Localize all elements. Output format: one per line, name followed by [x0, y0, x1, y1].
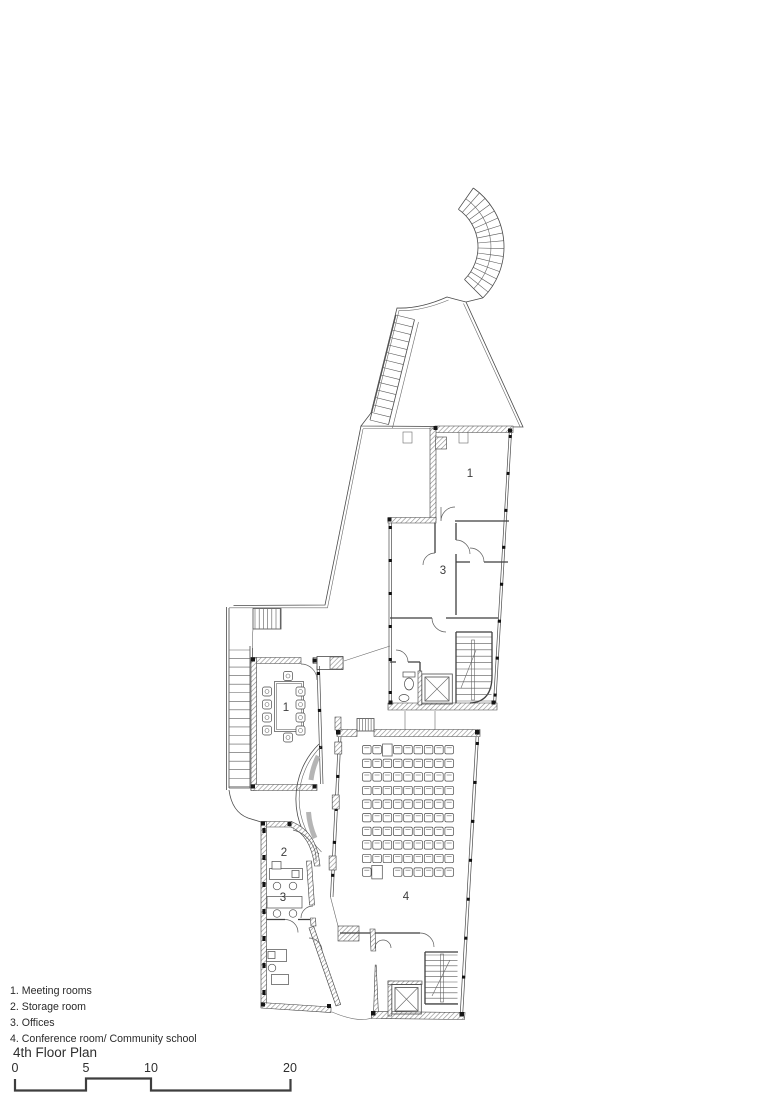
terrace-stair	[370, 315, 419, 428]
upper-wc	[390, 650, 420, 703]
office-desks	[267, 862, 303, 985]
drawing-title: 4th Floor Plan	[13, 1045, 97, 1060]
meeting-east-window-wall	[317, 666, 323, 784]
legend-item-2: 2. Storage room	[10, 1000, 197, 1016]
scale-label-20: 20	[283, 1061, 297, 1075]
scale-label-10: 10	[144, 1061, 158, 1075]
scale-label-5: 5	[83, 1061, 90, 1075]
upper-left-window-wall	[389, 523, 392, 703]
west-stair-treads	[230, 650, 251, 787]
terrace	[361, 297, 523, 443]
room-label-storage: 2	[281, 847, 287, 859]
upper-stair-treads	[457, 637, 492, 701]
legend-item-3: 3. Offices	[10, 1016, 197, 1032]
lower-stair	[425, 952, 458, 1004]
scale-label-0: 0	[12, 1061, 19, 1075]
upper-elevator	[418, 671, 452, 705]
curved-exterior-stair	[458, 188, 504, 298]
legend: 1. Meeting rooms 2. Storage room 3. Offi…	[10, 984, 197, 1048]
room-label-conference: 4	[403, 891, 410, 903]
lower-stair-treads	[426, 955, 458, 1004]
conference-east-window-wall	[460, 737, 478, 1013]
legend-item-1: 1. Meeting rooms	[10, 984, 197, 1000]
meeting-block	[251, 657, 343, 791]
lower-elevator	[388, 981, 422, 1016]
conference-seats	[363, 744, 454, 879]
scale-bar: 0 5 10 20	[12, 1061, 297, 1091]
room-label-offices: 3	[280, 892, 286, 904]
lower-left-block	[261, 822, 341, 1013]
room-label-upper-offices: 3	[440, 565, 446, 577]
conference-block	[329, 717, 480, 1020]
upper-stair	[456, 632, 492, 703]
entry-steps-treads	[360, 719, 372, 731]
upper-block	[388, 426, 513, 710]
room-label-west-meeting: 1	[283, 702, 289, 714]
upper-right-window-wall	[494, 433, 512, 703]
floor-plan-page: 1 3 1 2 3 4 0 5 10 20 1. Meeting rooms 2…	[0, 0, 780, 1103]
entry-steps	[357, 719, 374, 732]
room-label-upper-meeting: 1	[467, 468, 473, 480]
west-small-flight-treads	[255, 609, 280, 629]
floor-plan-canvas: 1 3 1 2 3 4 0 5 10 20	[0, 0, 780, 1103]
conference-west-window-wall	[329, 737, 342, 897]
